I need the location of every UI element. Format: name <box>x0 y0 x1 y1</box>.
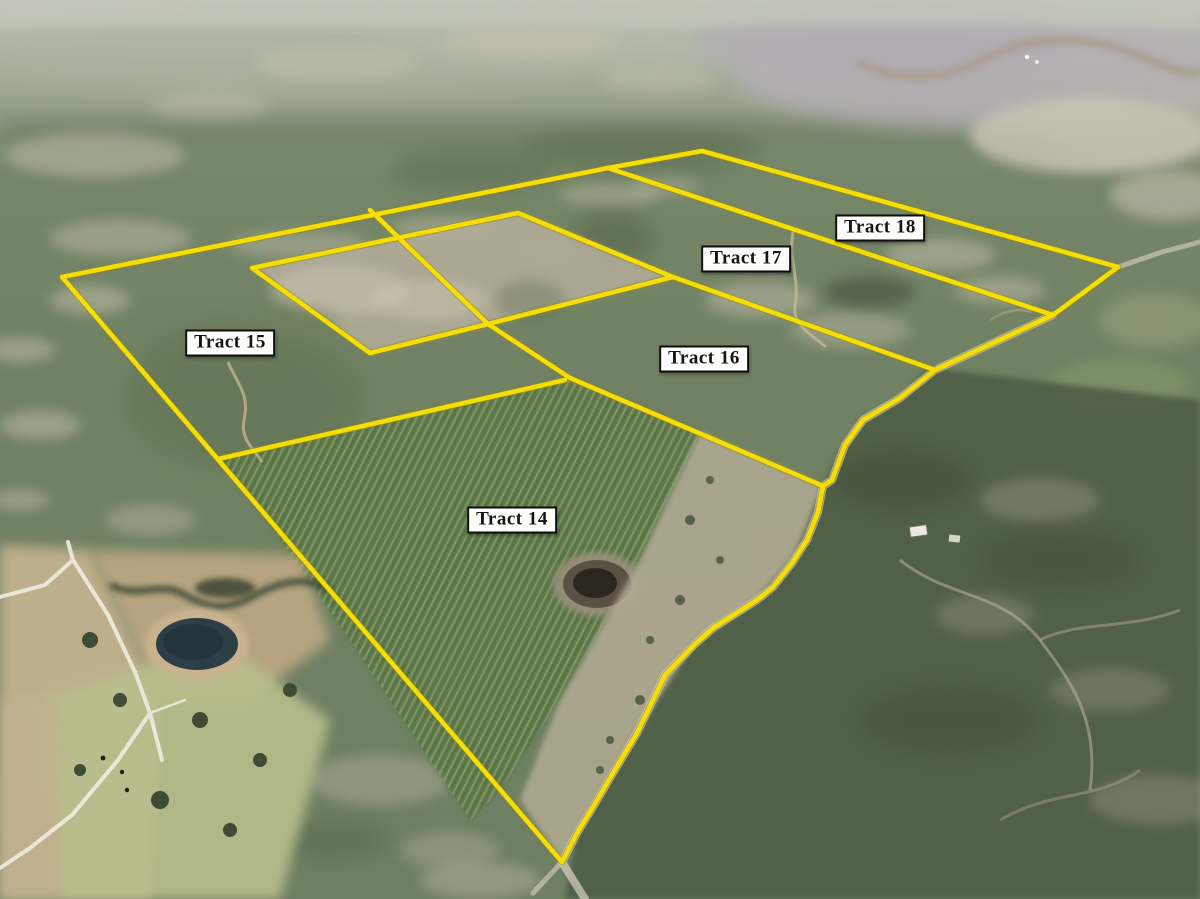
divider-tract15-tract14 <box>218 380 565 459</box>
boundary-outer <box>62 151 1118 862</box>
boundary-overlay <box>0 0 1200 899</box>
tract-18-label: Tract 18 <box>835 215 925 242</box>
clearcut-parcel-boundary <box>252 213 673 353</box>
tract-17-label: Tract 17 <box>701 246 791 273</box>
divider-16-14-underlay <box>488 324 823 486</box>
tract-14-label: Tract 14 <box>467 507 557 534</box>
clearcut-cross-line <box>370 210 488 324</box>
tract-16-label: Tract 16 <box>659 346 749 373</box>
boundary-outer-underlay <box>62 151 1118 862</box>
aerial-property-photo: Tract 15 Tract 14 Tract 16 Tract 17 Trac… <box>0 0 1200 899</box>
tract-15-label: Tract 15 <box>185 330 275 357</box>
